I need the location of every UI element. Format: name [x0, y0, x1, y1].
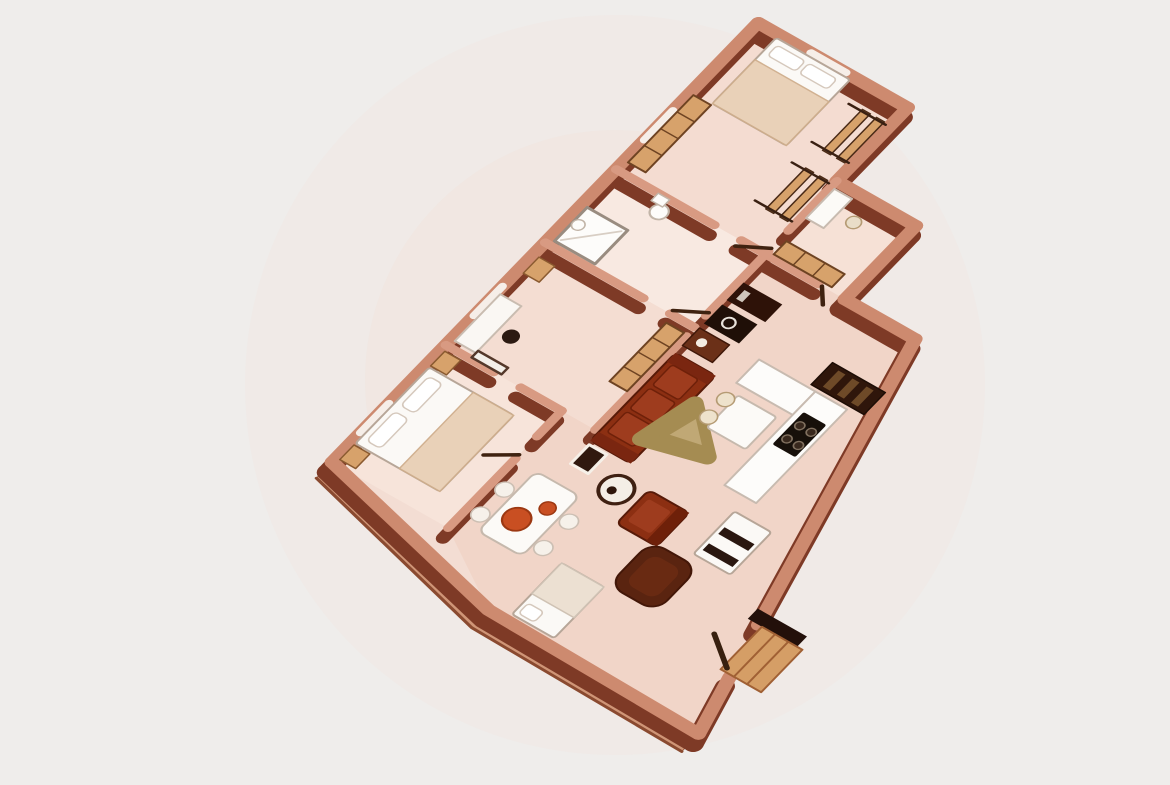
floor-plan-3d-rendering: [0, 0, 1170, 785]
floor-plan-image: [0, 0, 1170, 785]
